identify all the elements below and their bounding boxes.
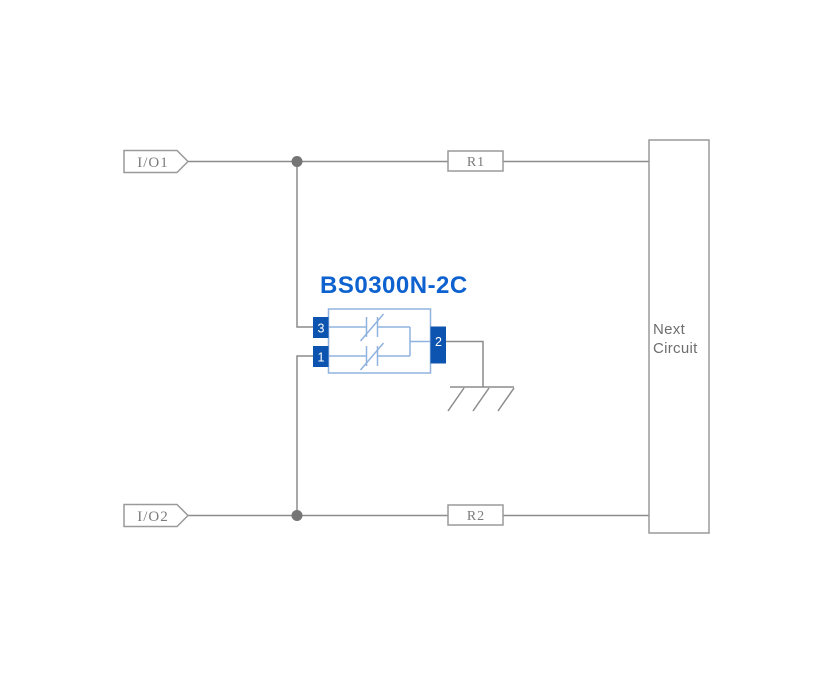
io2-connector: I/O2 <box>124 505 188 527</box>
junction-dot-bottom <box>292 510 303 521</box>
pin1-number: 1 <box>318 351 325 365</box>
tvs-component: BS0300N-2C <box>313 272 468 373</box>
component-title: BS0300N-2C <box>320 272 468 299</box>
r2-label: R2 <box>467 509 485 524</box>
wire-pin1-to-junction2 <box>297 356 313 516</box>
resistor-r1: R1 <box>448 151 503 171</box>
wire-junction1-to-pin3 <box>297 162 313 328</box>
r1-label: R1 <box>467 155 485 170</box>
ground-hatch-2 <box>473 388 489 411</box>
junction-dot-top <box>292 156 303 167</box>
pin3-number: 3 <box>318 322 325 336</box>
pin-2: 2 <box>431 327 447 364</box>
pin-1: 1 <box>313 346 329 367</box>
next-circuit-label-line1: Next <box>653 321 686 338</box>
ground-hatch-3 <box>498 388 514 411</box>
ground-hatch-1 <box>448 388 464 411</box>
wire-pin2-to-ground <box>446 342 483 388</box>
pin2-number: 2 <box>435 335 442 349</box>
next-circuit-block: Next Circuit <box>649 140 709 533</box>
schematic-canvas: I/O1 I/O2 R1 R2 Next Circuit BS0300N-2C <box>0 0 832 675</box>
io1-label: I/O1 <box>137 155 169 171</box>
next-circuit-label-line2: Circuit <box>653 340 698 357</box>
pin-3: 3 <box>313 317 329 338</box>
circuit-diagram: I/O1 I/O2 R1 R2 Next Circuit BS0300N-2C <box>0 0 832 675</box>
io2-label: I/O2 <box>137 509 169 525</box>
resistor-r2: R2 <box>448 505 503 525</box>
ground-symbol <box>448 387 514 411</box>
io1-connector: I/O1 <box>124 151 188 173</box>
